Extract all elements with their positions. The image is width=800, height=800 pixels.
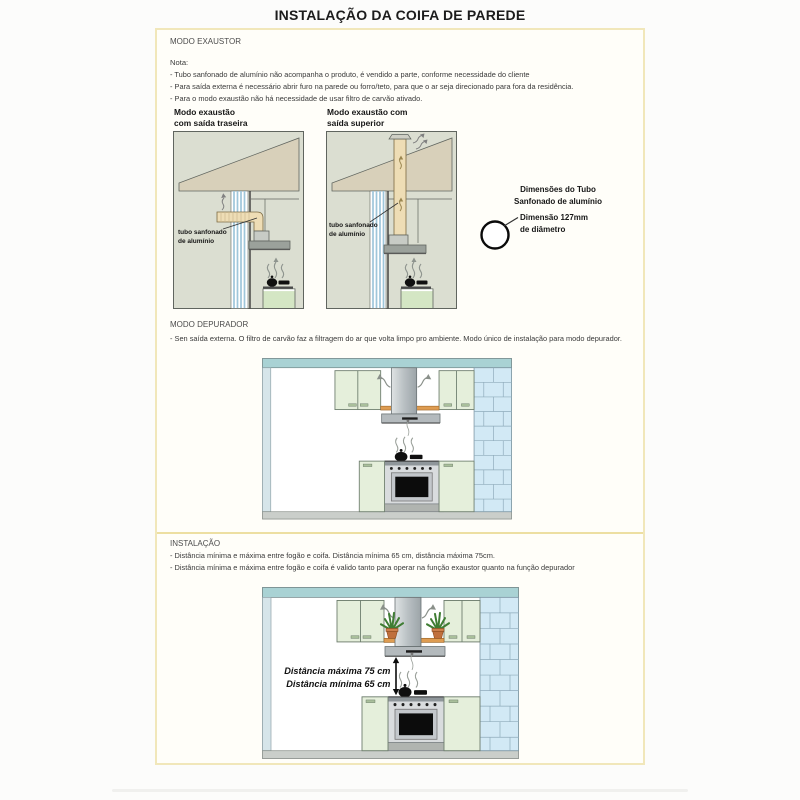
exaustor-bullet-2: - Para saída externa é necessário abrir …	[170, 82, 573, 91]
nota-label: Nota:	[170, 58, 188, 67]
distance-min-label: Distância mínima 65 cm	[286, 679, 390, 689]
tube-label-line2: de alumínio	[329, 231, 365, 238]
section-heading-instalacao: INSTALAÇÃO	[170, 539, 220, 548]
tube-label-line1: tubo sanfonado	[329, 222, 378, 229]
depurador-bullet: - Sen saída externa. O filtro de carvão …	[170, 334, 622, 343]
distance-max-label: Distância máxima 75 cm	[284, 666, 390, 676]
duct-cap	[389, 135, 411, 140]
section-heading-exaustor: MODO EXAUSTOR	[170, 37, 241, 46]
dimension-heading-line2: Sanfonado de alumínio	[514, 197, 602, 206]
diagram-title-superior-line2: saída superior	[327, 118, 408, 129]
tube-label-line2: de alumínio	[178, 238, 214, 245]
page-bottom-shadow	[112, 789, 688, 792]
content-frame: MODO EXAUSTOR Nota: - Tubo sanfonado de …	[155, 28, 645, 765]
dimension-heading-line1: Dimensões do Tubo	[520, 185, 596, 194]
striped-wall	[231, 191, 250, 309]
diagram-title-superior: Modo exaustão com saída superior	[327, 107, 408, 128]
dimension-label-line1: Dimensão 127mm	[520, 213, 588, 222]
exaustor-bullet-1: - Tubo sanfonado de alumínio não acompan…	[170, 70, 530, 79]
counter	[401, 289, 433, 309]
manual-page: INSTALAÇÃO DA COIFA DE PAREDE MODO EXAUS…	[0, 0, 800, 800]
diagram-title-traseira: Modo exaustão com saída traseira	[174, 107, 248, 128]
exaustor-bullet-3: - Para o modo exaustão não há necessidad…	[170, 94, 422, 103]
diagram-exaustao-saida-superior: tubo sanfonado de alumínio	[326, 131, 457, 309]
page-title: INSTALAÇÃO DA COIFA DE PAREDE	[0, 7, 800, 23]
callout-leader-line	[504, 218, 518, 227]
instalacao-bullet-2: - Distância mínima e máxima entre fogão …	[170, 563, 575, 572]
diagram-title-superior-line1: Modo exaustão com	[327, 107, 408, 118]
tube-label-line1: tubo sanfonado	[178, 229, 227, 236]
tube-dimension-callout: Dimensões do Tubo Sanfonado de alumínio …	[460, 180, 640, 265]
instalacao-bullet-1: - Distância mínima e máxima entre fogão …	[170, 551, 495, 560]
section-heading-depurador: MODO DEPURADOR	[170, 320, 248, 329]
diagram-kitchen-distancias: Distância máxima 75 cm Distância mínima …	[262, 587, 519, 759]
section-divider	[157, 532, 643, 534]
diagram-title-traseira-line2: com saída traseira	[174, 118, 248, 129]
diagram-kitchen-depurador	[262, 358, 512, 520]
dimension-label-line2: de diâmetro	[520, 225, 565, 234]
diagram-exaustao-saida-traseira: tubo sanfonado de alumínio	[173, 131, 304, 309]
diagram-title-traseira-line1: Modo exaustão	[174, 107, 248, 118]
counter	[263, 289, 295, 309]
